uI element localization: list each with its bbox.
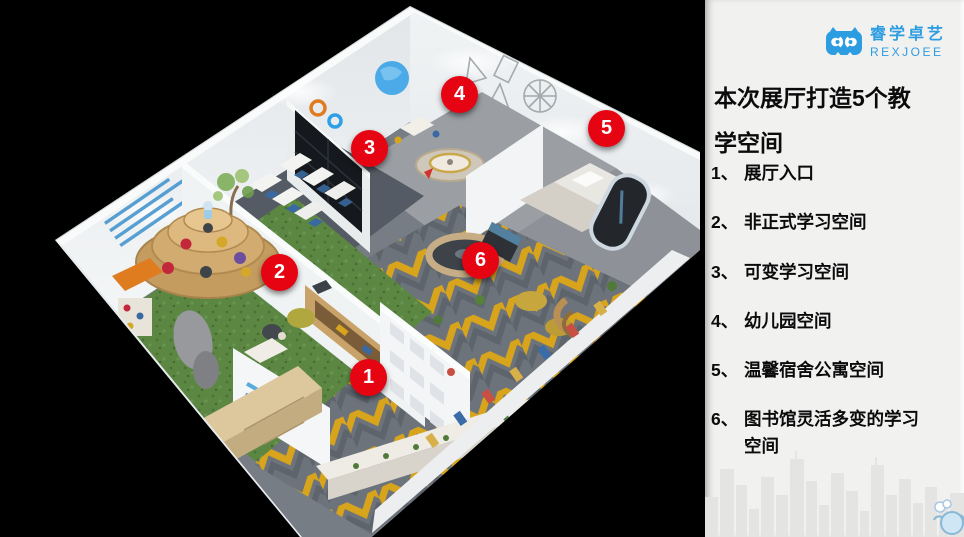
marker-2-informal-learning: 2 bbox=[261, 254, 298, 291]
legend-label: 展厅入口 bbox=[744, 160, 814, 186]
brand-logo: 睿学卓艺 REXJOEE bbox=[825, 26, 946, 60]
owl-logo-icon bbox=[825, 26, 863, 60]
marker-number: 1 bbox=[363, 366, 374, 389]
legend-label: 可变学习空间 bbox=[744, 259, 849, 285]
corner-doodle bbox=[922, 493, 964, 537]
exhibition-render: 1 2 3 4 5 6 bbox=[0, 0, 705, 537]
marker-number: 4 bbox=[454, 83, 465, 106]
legend-item-dormitory: 5、 温馨宿舍公寓空间 bbox=[711, 357, 961, 383]
legend-item-flexible-learning: 3、 可变学习空间 bbox=[711, 259, 961, 285]
brand-name-en: REXJOEE bbox=[870, 46, 946, 59]
legend-item-entrance: 1、 展厅入口 bbox=[711, 160, 961, 186]
legend-number: 2、 bbox=[711, 209, 744, 235]
legend-label: 温馨宿舍公寓空间 bbox=[744, 357, 884, 383]
marker-number: 6 bbox=[475, 249, 486, 272]
marker-6-library: 6 bbox=[462, 242, 499, 279]
marker-number: 5 bbox=[601, 117, 612, 140]
marker-4-kindergarten: 4 bbox=[441, 76, 478, 113]
brand-text: 睿学卓艺 REXJOEE bbox=[870, 27, 946, 58]
legend-number: 3、 bbox=[711, 259, 744, 285]
exhibition-render-drawing bbox=[0, 0, 705, 537]
marker-1-entrance: 1 bbox=[350, 359, 387, 396]
marker-number: 2 bbox=[274, 261, 285, 284]
legend-label: 非正式学习空间 bbox=[744, 209, 867, 235]
page-title: 本次展厅打造5个教学空间 bbox=[714, 76, 928, 166]
brand-name-cn: 睿学卓艺 bbox=[870, 27, 946, 44]
info-panel: 睿学卓艺 REXJOEE 本次展厅打造5个教学空间 1、 展厅入口 2、 非正式… bbox=[705, 0, 964, 537]
marker-5-dormitory: 5 bbox=[588, 110, 625, 147]
legend-number: 6、 bbox=[711, 406, 744, 459]
legend-number: 4、 bbox=[711, 308, 744, 334]
legend-label: 图书馆灵活多变的学习空间 bbox=[744, 406, 930, 459]
legend-item-informal-learning: 2、 非正式学习空间 bbox=[711, 209, 961, 235]
legend-item-kindergarten: 4、 幼儿园空间 bbox=[711, 308, 961, 334]
wall-light-glow bbox=[262, 76, 338, 108]
legend-number: 1、 bbox=[711, 160, 744, 186]
legend-list: 1、 展厅入口 2、 非正式学习空间 3、 可变学习空间 4、 幼儿园空间 5、… bbox=[711, 160, 961, 482]
ink-blob-decal bbox=[375, 61, 409, 95]
legend-label: 幼儿园空间 bbox=[744, 308, 832, 334]
marker-3-flexible-learning: 3 bbox=[351, 130, 388, 167]
presentation-slide: 1 2 3 4 5 6 bbox=[0, 0, 964, 537]
marker-number: 3 bbox=[364, 137, 375, 160]
legend-number: 5、 bbox=[711, 357, 744, 383]
legend-item-library: 6、 图书馆灵活多变的学习空间 bbox=[711, 406, 961, 459]
